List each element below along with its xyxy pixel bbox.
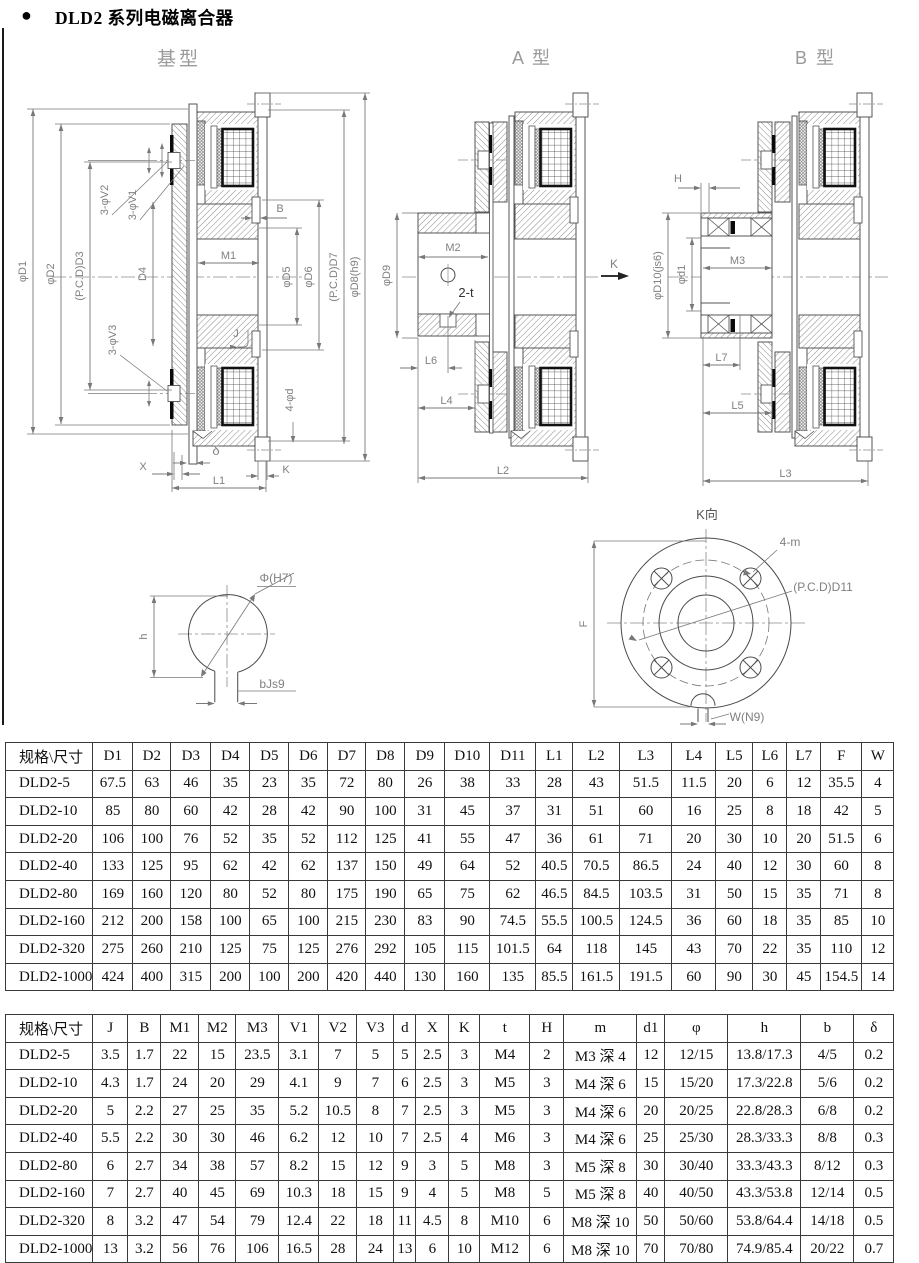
svg-text:φD10(js6): φD10(js6) (652, 251, 664, 300)
svg-text:M1: M1 (221, 250, 236, 262)
svg-text:L4: L4 (440, 395, 452, 407)
svg-text:L3: L3 (779, 468, 791, 480)
svg-text:bJs9: bJs9 (259, 677, 285, 691)
svg-text:H: H (674, 173, 682, 185)
svg-text:(P.C.D)D3: (P.C.D)D3 (74, 251, 86, 300)
svg-text:B 型: B 型 (795, 48, 836, 68)
svg-text:F: F (578, 620, 590, 627)
svg-text:δ: δ (212, 443, 219, 458)
svg-text:φd1: φd1 (676, 265, 688, 284)
svg-text:L1: L1 (213, 475, 225, 487)
svg-text:L2: L2 (497, 465, 509, 477)
svg-text:L7: L7 (715, 352, 727, 364)
svg-text:4-φd: 4-φd (284, 388, 296, 411)
svg-text:X: X (139, 461, 147, 473)
svg-text:M2: M2 (445, 242, 460, 254)
svg-text:3-φV2: 3-φV2 (99, 185, 111, 215)
svg-text:A 型: A 型 (512, 48, 552, 68)
svg-text:4-m: 4-m (780, 535, 801, 549)
svg-text:φD1: φD1 (17, 261, 29, 282)
svg-text:Φ(H7): Φ(H7) (260, 571, 293, 585)
svg-text:M3: M3 (730, 255, 745, 267)
svg-text:B: B (276, 203, 283, 215)
svg-text:φD6: φD6 (303, 266, 315, 287)
svg-text:K向: K向 (696, 507, 718, 522)
svg-text:K: K (282, 464, 290, 476)
svg-text:基型: 基型 (157, 48, 201, 70)
svg-text:φD5: φD5 (281, 266, 293, 287)
svg-text:D4: D4 (137, 267, 149, 281)
svg-text:J: J (233, 328, 239, 340)
svg-text:W(N9): W(N9) (730, 710, 765, 724)
svg-text:φD2: φD2 (45, 263, 57, 284)
svg-text:3-φV3: 3-φV3 (107, 325, 119, 355)
svg-text:(P.C.D)D7: (P.C.D)D7 (328, 252, 340, 301)
svg-text:φD8(h9): φD8(h9) (349, 257, 361, 298)
svg-text:3-φV1: 3-φV1 (127, 190, 139, 220)
svg-text:φD9: φD9 (381, 265, 393, 286)
svg-text:h: h (138, 633, 150, 639)
svg-text:2-t: 2-t (458, 285, 474, 300)
svg-text:L5: L5 (731, 400, 743, 412)
svg-text:K: K (610, 257, 618, 271)
svg-text:L6: L6 (425, 355, 437, 367)
svg-text:(P.C.D)D11: (P.C.D)D11 (793, 580, 853, 594)
